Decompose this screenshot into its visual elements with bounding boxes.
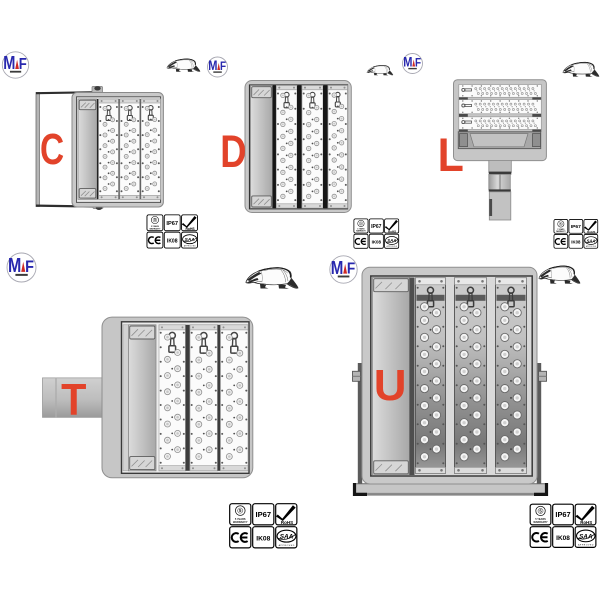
svg-text:M: M	[403, 55, 412, 70]
svg-text:C: C	[40, 126, 64, 174]
svg-text:F: F	[415, 57, 421, 70]
svg-text:U: U	[374, 362, 407, 410]
svg-text:F: F	[25, 258, 34, 276]
svg-text:D: D	[220, 126, 246, 177]
svg-text:L: L	[438, 128, 464, 181]
svg-text:T: T	[61, 375, 86, 425]
svg-text:F: F	[220, 60, 226, 73]
svg-text:F: F	[347, 260, 355, 278]
svg-text:M: M	[8, 254, 21, 276]
svg-text:M: M	[3, 54, 15, 74]
svg-text:M: M	[331, 257, 344, 278]
svg-text:M: M	[208, 58, 217, 73]
svg-text:F: F	[19, 56, 27, 73]
